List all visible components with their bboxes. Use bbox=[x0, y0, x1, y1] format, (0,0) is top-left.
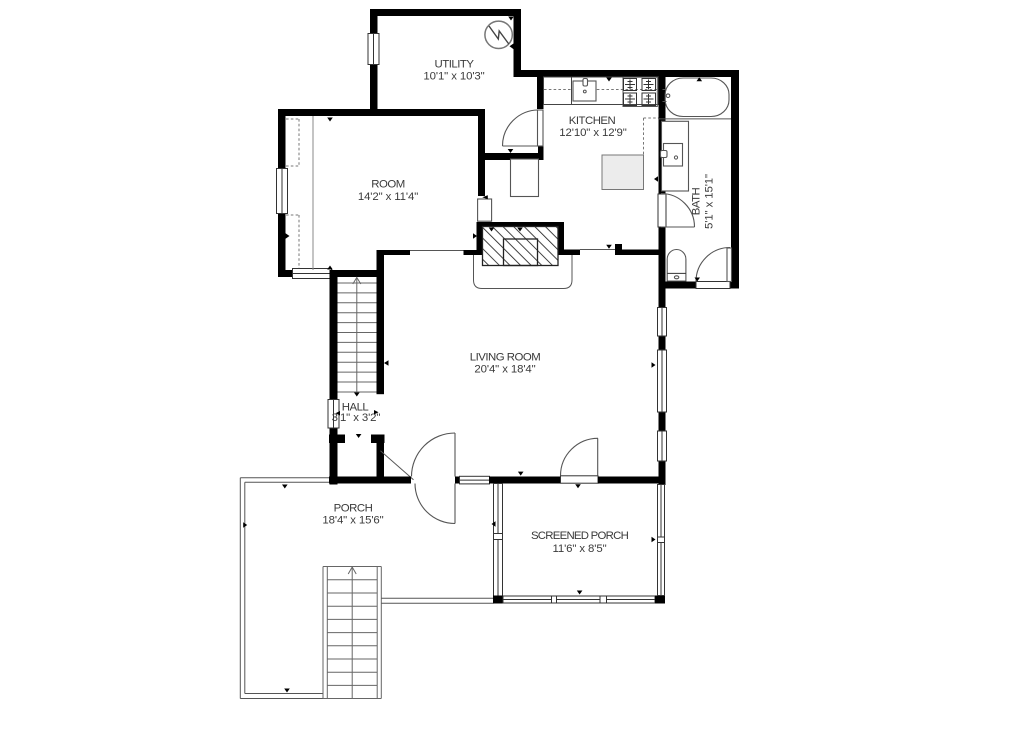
svg-text:20'4" x 18'4": 20'4" x 18'4" bbox=[474, 364, 535, 376]
svg-text:LIVING ROOM: LIVING ROOM bbox=[470, 352, 540, 364]
svg-text:PORCH: PORCH bbox=[334, 502, 373, 514]
svg-text:UTILITY: UTILITY bbox=[435, 59, 475, 71]
svg-text:10'1" x 10'3": 10'1" x 10'3" bbox=[423, 71, 484, 83]
svg-text:ROOM: ROOM bbox=[371, 179, 404, 191]
svg-text:KITCHEN: KITCHEN bbox=[569, 115, 616, 127]
svg-text:BATH: BATH bbox=[691, 187, 703, 215]
svg-text:12'10" x 12'9": 12'10" x 12'9" bbox=[559, 127, 626, 139]
svg-text:18'4" x 15'6": 18'4" x 15'6" bbox=[322, 514, 383, 526]
svg-text:11'6" x 8'5": 11'6" x 8'5" bbox=[552, 543, 606, 555]
svg-text:14'2" x 11'4": 14'2" x 11'4" bbox=[358, 191, 418, 203]
svg-text:5'1" x 15'1": 5'1" x 15'1" bbox=[704, 174, 716, 229]
svg-text:SCREENED PORCH: SCREENED PORCH bbox=[531, 530, 629, 542]
